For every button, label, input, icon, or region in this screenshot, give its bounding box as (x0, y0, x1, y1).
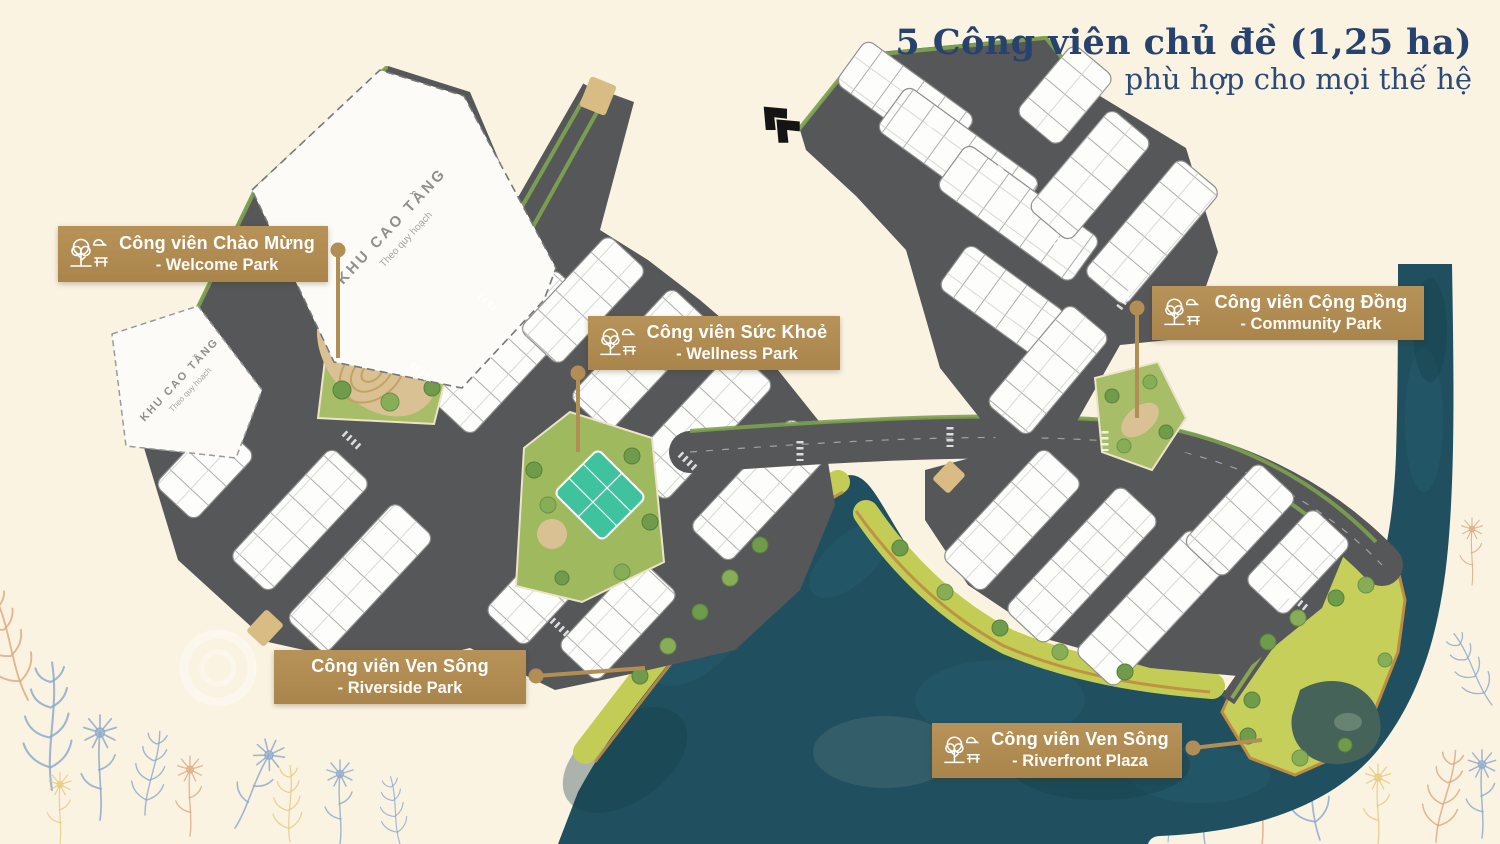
park-tree-bench-icon (1162, 295, 1202, 331)
masterplan-slide: KHU CAO TẦNG Theo quy hoạch KHU CAO TẦNG… (0, 0, 1500, 844)
callout-riverfront-line2: - Riverfront Plaza (988, 751, 1172, 771)
callout-welcome-line1: Công viên Chào Mừng (116, 233, 318, 255)
callout-riverfront-plaza: Công viên Ven Sông - Riverfront Plaza (932, 723, 1182, 778)
park-tree-bench-icon (598, 325, 638, 361)
callout-wellness-line1: Công viên Sức Khoẻ (644, 322, 830, 344)
callout-riverside-park: Công viên Ven Sông - Riverside Park (274, 650, 526, 704)
masterplan-map: KHU CAO TẦNG Theo quy hoạch KHU CAO TẦNG… (0, 0, 1500, 844)
entrance-arrow-icon (753, 96, 805, 148)
watermark (184, 634, 252, 702)
slide-title-line2: phù hợp cho mọi thế hệ (895, 63, 1472, 96)
slide-title-line1: 5 Công viên chủ đề (1,25 ha) (895, 24, 1472, 63)
park-tree-bench-icon (942, 733, 982, 769)
callout-community-line1: Công viên Cộng Đồng (1208, 292, 1414, 314)
callout-community-park: Công viên Cộng Đồng - Community Park (1152, 286, 1424, 340)
wellness-park (516, 412, 664, 602)
callout-community-line2: - Community Park (1208, 314, 1414, 334)
callout-wellness-park: Công viên Sức Khoẻ - Wellness Park (588, 316, 840, 370)
slide-title: 5 Công viên chủ đề (1,25 ha) phù hợp cho… (895, 24, 1472, 96)
park-tree-bench-icon (68, 235, 110, 273)
callout-riverside-line1: Công viên Ven Sông (284, 656, 516, 678)
callout-riverside-line2: - Riverside Park (284, 678, 516, 698)
callout-riverfront-line1: Công viên Ven Sông (988, 729, 1172, 751)
callout-wellness-line2: - Wellness Park (644, 344, 830, 364)
callout-welcome-park: Công viên Chào Mừng - Welcome Park (58, 226, 328, 282)
callout-welcome-line2: - Welcome Park (116, 255, 318, 275)
